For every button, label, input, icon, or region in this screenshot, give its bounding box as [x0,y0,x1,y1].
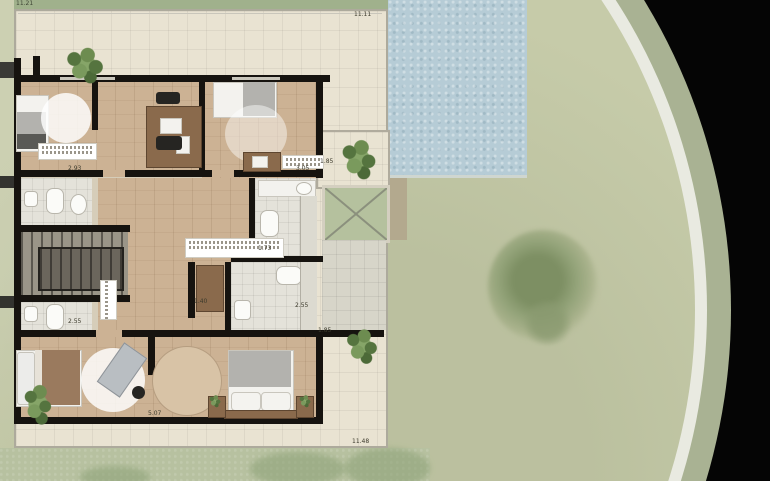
wall-stub [0,176,14,188]
gray-tile-court [322,240,386,330]
door-opening [103,170,125,177]
wall [14,330,323,337]
bed-blanket [229,351,291,387]
room-label-band [38,143,97,160]
pool-edge [388,175,527,178]
toilet [260,210,279,237]
dimension-label: 11.21 [16,1,33,7]
dimension-label: 1.85 [318,328,331,334]
wall [316,330,323,424]
plant [20,380,56,428]
door-opening [212,170,234,177]
planting-strip [390,178,407,240]
bush-small [520,300,575,345]
dimension-label: 1.73 [258,246,271,252]
dimension-label: 11.48 [352,439,369,445]
toilet [46,304,64,330]
chair [156,136,182,150]
tree-shadow [80,466,150,481]
wall [225,262,231,330]
bed-pillow [261,392,291,411]
skylight-cross-icon [325,188,387,240]
glass-door [232,77,280,80]
wall [14,225,130,232]
dimension-label: 2.55 [295,303,308,309]
wall-stub [0,296,14,308]
room-label-band [100,280,117,320]
wall-stub [0,62,14,78]
dimension-label: 1.40 [194,299,207,305]
plant [297,394,313,408]
pool [388,0,527,177]
bed-pillow [231,392,261,411]
toilet [46,188,64,214]
dresser-top-item [252,156,268,168]
wall [92,82,98,130]
terrace-edge-line [18,13,382,14]
bidet [70,194,87,215]
plant [207,394,223,408]
dimension-label: 5.07 [148,411,161,417]
shower [300,262,317,330]
toilet [276,266,302,285]
sink [296,182,312,195]
dimension-label: 1.85 [320,159,333,165]
dimension-label: 2.93 [68,166,81,172]
sink [234,300,251,320]
headboard [224,410,298,419]
dimension-label: 2.55 [68,319,81,325]
door-opening [96,330,122,337]
plant [340,326,384,366]
sink [24,306,38,322]
plant [58,45,112,85]
chair [156,92,180,104]
side-table [132,386,145,399]
sink [24,191,38,207]
plant [335,136,383,182]
tree-shadow [250,452,345,481]
tree-shadow [345,448,430,481]
floor-plan-scene: 11.21 11.11 1.85 3.05 1.73 2.55 1.40 2.9… [0,0,770,481]
shower [300,196,317,256]
skylight [322,185,390,243]
dimension-label: 3.05 [296,166,309,172]
wall [188,262,195,318]
desk-papers [160,118,182,134]
round-rug [41,93,91,143]
dimension-label: 11.11 [354,12,371,18]
